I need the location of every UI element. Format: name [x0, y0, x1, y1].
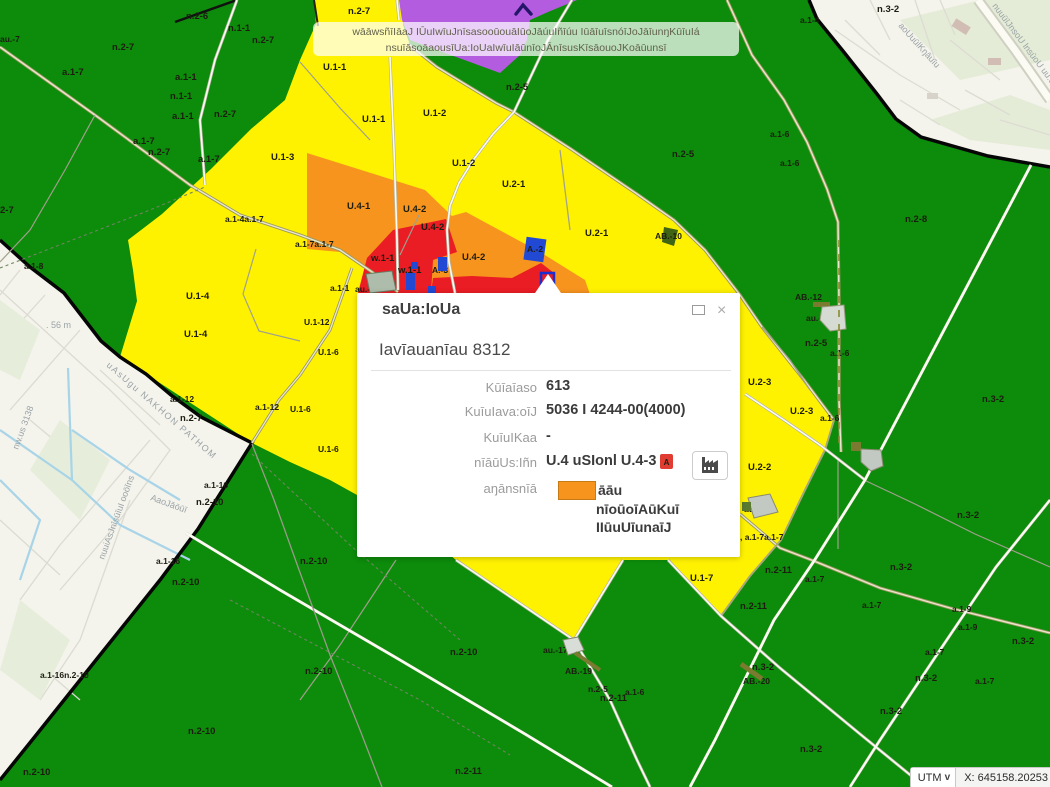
svg-text:U.2-3: U.2-3 — [748, 377, 771, 388]
svg-text:au.-17: au.-17 — [543, 645, 568, 655]
svg-text:n.2-10: n.2-10 — [450, 647, 477, 658]
svg-text:n.2-10: n.2-10 — [305, 666, 332, 677]
svg-text:a.1-7: a.1-7 — [62, 67, 84, 78]
svg-text:n.2-7: n.2-7 — [214, 109, 236, 120]
svg-text:a.1-6: a.1-6 — [830, 348, 850, 358]
svg-text:a.1-7: a.1-7 — [862, 600, 882, 610]
svg-text:n.2-10: n.2-10 — [172, 577, 199, 588]
svg-text:n.2-10: n.2-10 — [23, 767, 50, 778]
svg-text:. 56 m: . 56 m — [46, 320, 71, 330]
svg-text:n.2-5: n.2-5 — [588, 684, 608, 694]
svg-text:a.1-1: a.1-1 — [172, 111, 194, 122]
svg-text:au.-7: au.-7 — [0, 34, 20, 44]
svg-text:U.1-3: U.1-3 — [271, 152, 294, 163]
svg-text:n.3-2: n.3-2 — [877, 4, 899, 15]
svg-text:n.1-1: n.1-1 — [170, 91, 193, 102]
svg-text:a.1-1: a.1-1 — [175, 72, 197, 83]
svg-text:a.1-6: a.1-6 — [780, 158, 800, 168]
svg-text:a.1-12: a.1-12 — [255, 402, 279, 412]
svg-text:a.1-1: a.1-1 — [330, 283, 350, 293]
svg-text:a.1-16: a.1-16 — [156, 556, 180, 566]
svg-text:n.3-2: n.3-2 — [957, 510, 979, 521]
svg-text:a.1-7: a.1-7 — [925, 647, 945, 657]
svg-text:a.1-16n.2-10: a.1-16n.2-10 — [40, 670, 89, 680]
svg-text:U.1-12: U.1-12 — [304, 317, 330, 327]
svg-text:a.1-6: a.1-6 — [625, 687, 645, 697]
svg-text:U.4-1: U.4-1 — [347, 201, 371, 212]
svg-text:a.1-9: a.1-9 — [952, 604, 972, 614]
svg-text:n.2-10: n.2-10 — [300, 556, 327, 567]
svg-text:a.1-16: a.1-16 — [204, 480, 228, 490]
svg-text:a.1-7: a.1-7 — [805, 574, 825, 584]
svg-text:, a.1-7a.1-7: , a.1-7a.1-7 — [740, 532, 784, 542]
svg-text:U.4-2: U.4-2 — [421, 222, 444, 233]
svg-text:n.2-11: n.2-11 — [740, 601, 768, 612]
svg-text:AB.-19: AB.-19 — [565, 666, 592, 676]
svg-text:n.3-2: n.3-2 — [915, 673, 937, 684]
svg-text:a.1-4: a.1-4 — [800, 15, 820, 25]
svg-text:U.1-7: U.1-7 — [690, 573, 713, 584]
svg-text:n.2-11: n.2-11 — [600, 693, 628, 704]
svg-text:2-7: 2-7 — [0, 205, 14, 216]
svg-text:U.1-4: U.1-4 — [186, 291, 210, 302]
svg-text:U.1-2: U.1-2 — [452, 158, 475, 169]
svg-text:n.2-11: n.2-11 — [765, 565, 793, 576]
svg-text:A: A — [664, 458, 670, 467]
svg-text:a.1-8: a.1-8 — [24, 261, 44, 271]
svg-text:n.1-1: n.1-1 — [228, 23, 251, 34]
svg-text:a.1-6: a.1-6 — [770, 129, 790, 139]
svg-text:a.1-9: a.1-9 — [958, 622, 978, 632]
svg-text:AB.-12: AB.-12 — [795, 292, 822, 302]
svg-text:n.2-7: n.2-7 — [148, 147, 170, 158]
svg-text:U.4-2: U.4-2 — [462, 252, 485, 263]
svg-text:n.3-2: n.3-2 — [880, 706, 902, 717]
svg-text:U.1-1: U.1-1 — [362, 114, 386, 125]
svg-text:U.1-2: U.1-2 — [423, 108, 446, 119]
svg-text:U.2-3: U.2-3 — [790, 406, 813, 417]
svg-text:AB.-10: AB.-10 — [655, 231, 682, 241]
svg-text:A.-2: A.-2 — [527, 244, 543, 254]
svg-text:U.1-1: U.1-1 — [323, 62, 347, 73]
svg-text:n.2-5: n.2-5 — [672, 149, 695, 160]
svg-text:a.1-7: a.1-7 — [198, 154, 220, 165]
svg-text:a.1-7: a.1-7 — [975, 676, 995, 686]
svg-text:n.3-2: n.3-2 — [890, 562, 912, 573]
svg-text:U.2-1: U.2-1 — [502, 179, 526, 190]
svg-text:a.1-6: a.1-6 — [820, 413, 840, 423]
svg-text:n.2-10: n.2-10 — [188, 726, 215, 737]
svg-text:w.1-1: w.1-1 — [370, 253, 395, 264]
svg-text:n.2-7: n.2-7 — [252, 35, 274, 46]
svg-text:U.1-4: U.1-4 — [184, 329, 208, 340]
svg-text:a.1-4a.1-7: a.1-4a.1-7 — [225, 214, 264, 224]
svg-text:U.1-6: U.1-6 — [290, 404, 311, 414]
svg-text:n.2-5: n.2-5 — [805, 338, 828, 349]
svg-text:a.1-7a.1-7: a.1-7a.1-7 — [295, 239, 334, 249]
svg-text:a.1-7: a.1-7 — [133, 136, 155, 147]
svg-text:n.3-2: n.3-2 — [1012, 636, 1034, 647]
svg-text:n.3-2: n.3-2 — [982, 394, 1004, 405]
svg-text:n.2-5: n.2-5 — [506, 82, 529, 93]
svg-text:U.1-6: U.1-6 — [318, 444, 339, 454]
svg-text:U.2-2: U.2-2 — [748, 462, 771, 473]
svg-text:n.3-2: n.3-2 — [800, 744, 822, 755]
svg-text:n.2-6: n.2-6 — [186, 11, 208, 22]
svg-text:a.1-12: a.1-12 — [170, 394, 194, 404]
svg-text:U.2-1: U.2-1 — [585, 228, 609, 239]
svg-text:U.1-6: U.1-6 — [318, 347, 339, 357]
svg-text:n.2-11: n.2-11 — [455, 766, 483, 777]
svg-text:U.4-2: U.4-2 — [403, 204, 426, 215]
svg-text:n.2-7: n.2-7 — [112, 42, 134, 53]
svg-text:n.2-10: n.2-10 — [196, 497, 223, 508]
svg-text:n.2-8: n.2-8 — [905, 214, 927, 225]
svg-text:n.2-7: n.2-7 — [348, 6, 370, 17]
